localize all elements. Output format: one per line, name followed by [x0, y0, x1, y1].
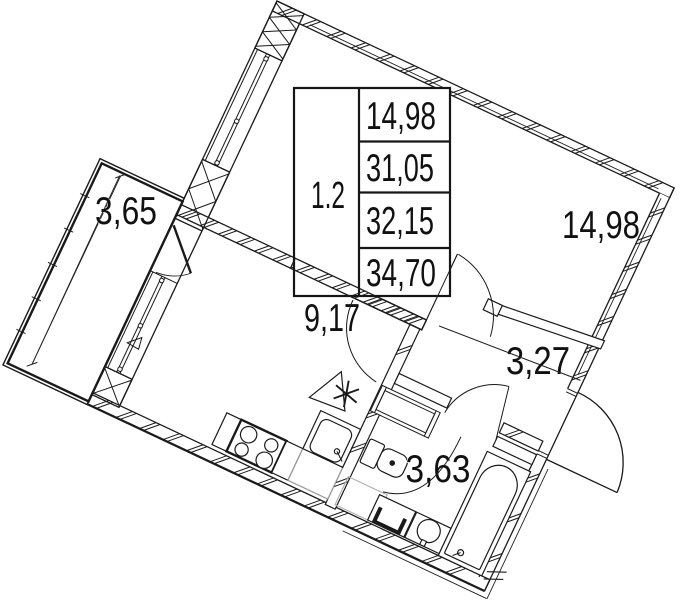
svg-text:32,15: 32,15 — [366, 200, 434, 243]
svg-text:3,65: 3,65 — [95, 190, 157, 233]
svg-text:1.2: 1.2 — [311, 175, 345, 217]
svg-text:14,98: 14,98 — [366, 95, 436, 138]
svg-text:34,70: 34,70 — [366, 252, 436, 295]
svg-text:3,27: 3,27 — [506, 340, 570, 383]
svg-text:31,05: 31,05 — [366, 147, 434, 190]
svg-text:14,98: 14,98 — [562, 204, 640, 247]
svg-text:3,63: 3,63 — [406, 448, 471, 491]
